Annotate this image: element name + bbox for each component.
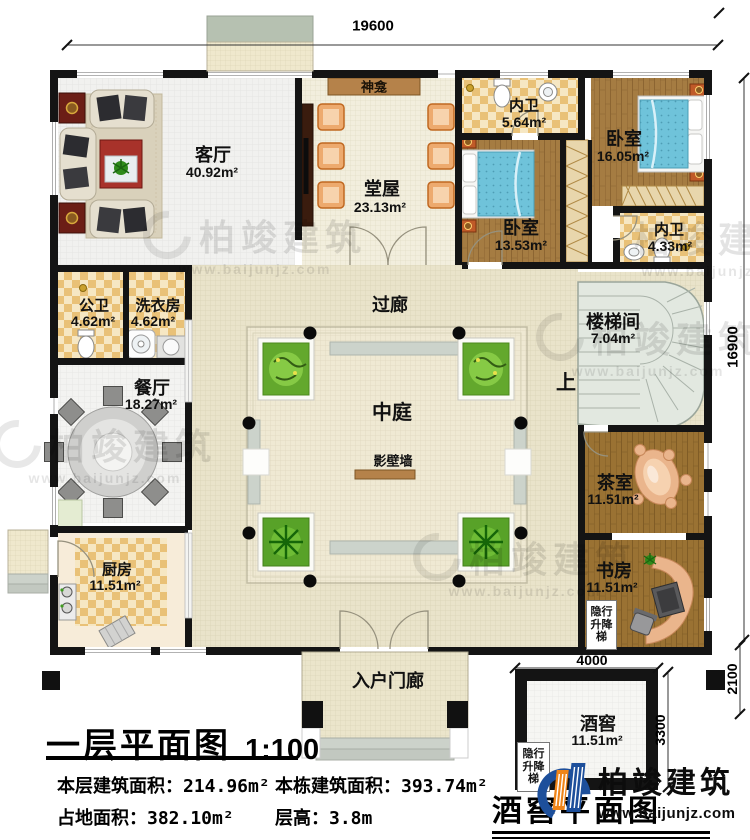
- room-label-cellar: 酒窖: [580, 715, 616, 733]
- room-area-laundry: 4.62m²: [131, 314, 175, 328]
- stat-land-area-label: 占地面积：: [57, 808, 147, 828]
- stat-land-area: 占地面积：382.10m²: [57, 804, 234, 830]
- room-label-living: 客厅: [195, 146, 231, 164]
- dim-cellar-width: 4000: [576, 653, 607, 667]
- cellar-title-underline-2: [492, 837, 710, 839]
- stairs-up-label: 上: [556, 373, 576, 393]
- stat-floor-height-label: 层高：: [275, 808, 329, 828]
- logo-url-text: www.baijunjz.com: [598, 805, 735, 822]
- room-label-hall: 堂屋: [364, 180, 400, 198]
- stat-floor-area-label: 本层建筑面积：: [57, 776, 183, 796]
- porch-pillar: [447, 701, 468, 728]
- room-label-stairwell: 楼梯间: [586, 313, 640, 331]
- room-label-bedroom-left: 卧室: [503, 219, 539, 237]
- room-label-kitchen: 厨房: [102, 563, 132, 578]
- room-area-stairwell: 7.04m²: [591, 331, 635, 345]
- dim-overall-width: 19600: [352, 19, 394, 34]
- column-pad: [243, 449, 269, 475]
- room-area-kitchen: 11.51m²: [89, 578, 140, 592]
- cellar-title-underline: [492, 831, 710, 834]
- room-label-laundry: 洗衣房: [135, 299, 180, 314]
- side-steps: [8, 530, 48, 593]
- room-area-bath-right: 4.33m²: [648, 239, 692, 253]
- planter-tree: [258, 338, 314, 400]
- room-label-porch: 入户门廊: [352, 672, 424, 690]
- room-area-hall: 23.13m²: [354, 200, 406, 214]
- dim-overall-height: 16900: [726, 326, 741, 368]
- bedroom-right-furniture: [638, 84, 708, 181]
- stat-floor-area-value: 214.96m²: [183, 776, 270, 797]
- room-area-study: 11.51m²: [586, 580, 637, 594]
- room-area-public-bath: 4.62m²: [71, 314, 115, 328]
- stat-total-area-label: 本栋建筑面积：: [275, 776, 401, 796]
- entry-porch: [302, 652, 468, 760]
- logo-mark-icon: [534, 758, 596, 824]
- title-underline: [46, 756, 298, 760]
- stat-floor-area: 本层建筑面积：214.96m²: [57, 772, 270, 798]
- spiral-staircase: [578, 282, 704, 430]
- planter-palm: [458, 513, 514, 571]
- shrine-label: 神龛: [361, 81, 387, 94]
- room-area-bedroom-right: 16.05m²: [597, 149, 649, 163]
- planter-palm: [258, 513, 314, 571]
- screen-wall-label: 影壁墙: [373, 455, 412, 468]
- stat-total-area-value: 393.74m²: [401, 776, 488, 797]
- planter-tree: [458, 338, 514, 400]
- floor-plan-screenshot: 柏竣建筑 www.baijunjz.com 柏竣建筑 www.baijunjz.…: [0, 0, 750, 840]
- logo-brand-text: 柏竣建筑: [598, 758, 735, 802]
- room-area-tea: 11.51m²: [587, 492, 638, 506]
- room-area-bath-top: 5.64m²: [502, 115, 546, 129]
- screen-wall-bar: [355, 470, 415, 479]
- hidden-lift-study: 隐行升降梯: [586, 600, 617, 650]
- dim-cellar-side: 2100: [725, 663, 739, 694]
- room-area-living: 40.92m²: [186, 165, 238, 179]
- room-label-corridor: 过廊: [372, 296, 408, 314]
- stat-floor-height: 层高：3.8m: [275, 804, 372, 830]
- room-area-bedroom-left: 13.53m²: [495, 238, 547, 252]
- room-area-dining: 18.27m²: [125, 397, 177, 411]
- column-pad: [505, 449, 531, 475]
- room-area-cellar: 11.51m²: [571, 733, 622, 747]
- dim-cellar-height: 3300: [653, 714, 667, 745]
- room-label-atrium: 中庭: [372, 403, 412, 423]
- room-label-study: 书房: [596, 562, 632, 580]
- top-bay: [207, 16, 313, 71]
- room-label-bedroom-right: 卧室: [606, 130, 642, 148]
- stat-floor-height-value: 3.8m: [329, 808, 372, 829]
- counter: [58, 500, 82, 528]
- room-label-public-bath: 公卫: [79, 299, 109, 314]
- pier-block: [706, 670, 725, 690]
- room-label-dining: 餐厅: [134, 379, 170, 397]
- pier-block: [42, 671, 60, 690]
- room-label-bath-right: 内卫: [654, 223, 684, 238]
- stat-total-area: 本栋建筑面积：393.74m²: [275, 772, 488, 798]
- company-logo: 柏竣建筑 www.baijunjz.com: [534, 758, 735, 824]
- plan-scale: 1:100: [245, 734, 319, 767]
- room-label-bath-top: 内卫: [509, 99, 539, 114]
- stat-land-area-value: 382.10m²: [147, 808, 234, 829]
- room-label-tea: 茶室: [597, 474, 633, 492]
